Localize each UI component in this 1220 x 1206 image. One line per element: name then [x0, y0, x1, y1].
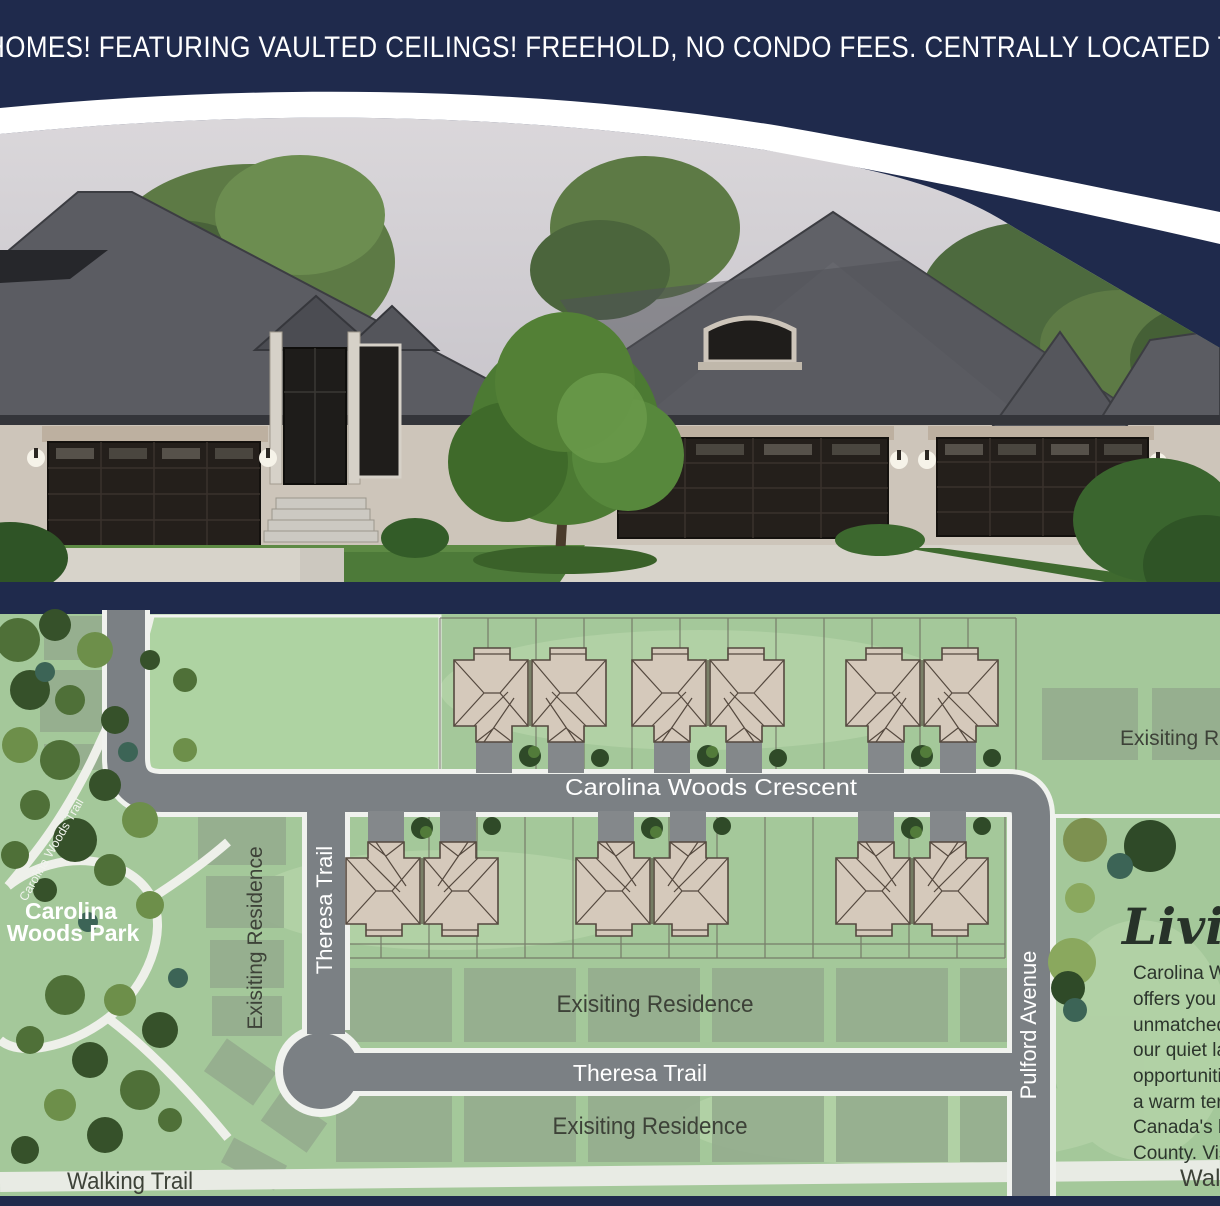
info-line: Carolina W — [1133, 963, 1220, 984]
trail-label-walking-right: Walk — [1180, 1165, 1220, 1192]
info-line: our quiet la — [1133, 1040, 1220, 1061]
info-line: a warm ter — [1133, 1092, 1220, 1113]
real-estate-flyer: HOMES! FEATURING VAULTED CEILINGS! FREEH… — [0, 0, 1220, 1206]
info-heading: Living — [1120, 897, 1220, 956]
bottom-border — [0, 1196, 1220, 1206]
trail-label-walking-left: Walking Trail — [67, 1168, 193, 1195]
info-line: County. Vis — [1133, 1143, 1220, 1164]
street-label-theresa-horizontal: Theresa Trail — [573, 1060, 707, 1086]
garage-door-icon — [48, 442, 260, 546]
banner-headline: HOMES! FEATURING VAULTED CEILINGS! FREEH… — [0, 31, 1220, 64]
street-label-theresa-vertical: Theresa Trail — [312, 846, 337, 974]
street-label-pulford: Pulford Avenue — [1016, 951, 1041, 1100]
info-line: Canada's b — [1133, 1117, 1220, 1138]
area-label-existing-topright: Exisiting R — [1120, 727, 1219, 750]
site-plan-map: Living Carolina W offers you unmatched o… — [0, 609, 1220, 1206]
info-line: offers you — [1133, 989, 1216, 1010]
arched-window-icon — [698, 318, 802, 370]
flyer-canvas: HOMES! FEATURING VAULTED CEILINGS! FREEH… — [0, 0, 1220, 1206]
area-label-existing-vertical: Exisiting Residence — [244, 846, 267, 1029]
park-label-line2: Woods Park — [7, 920, 140, 946]
area-label-existing-row2: Exisiting Residence — [553, 1113, 748, 1140]
info-line: unmatched — [1133, 1015, 1220, 1036]
area-label-existing-row1: Exisiting Residence — [557, 991, 754, 1018]
info-line: opportuniti — [1133, 1066, 1220, 1087]
street-label-crescent: Carolina Woods Crescent — [565, 774, 858, 800]
